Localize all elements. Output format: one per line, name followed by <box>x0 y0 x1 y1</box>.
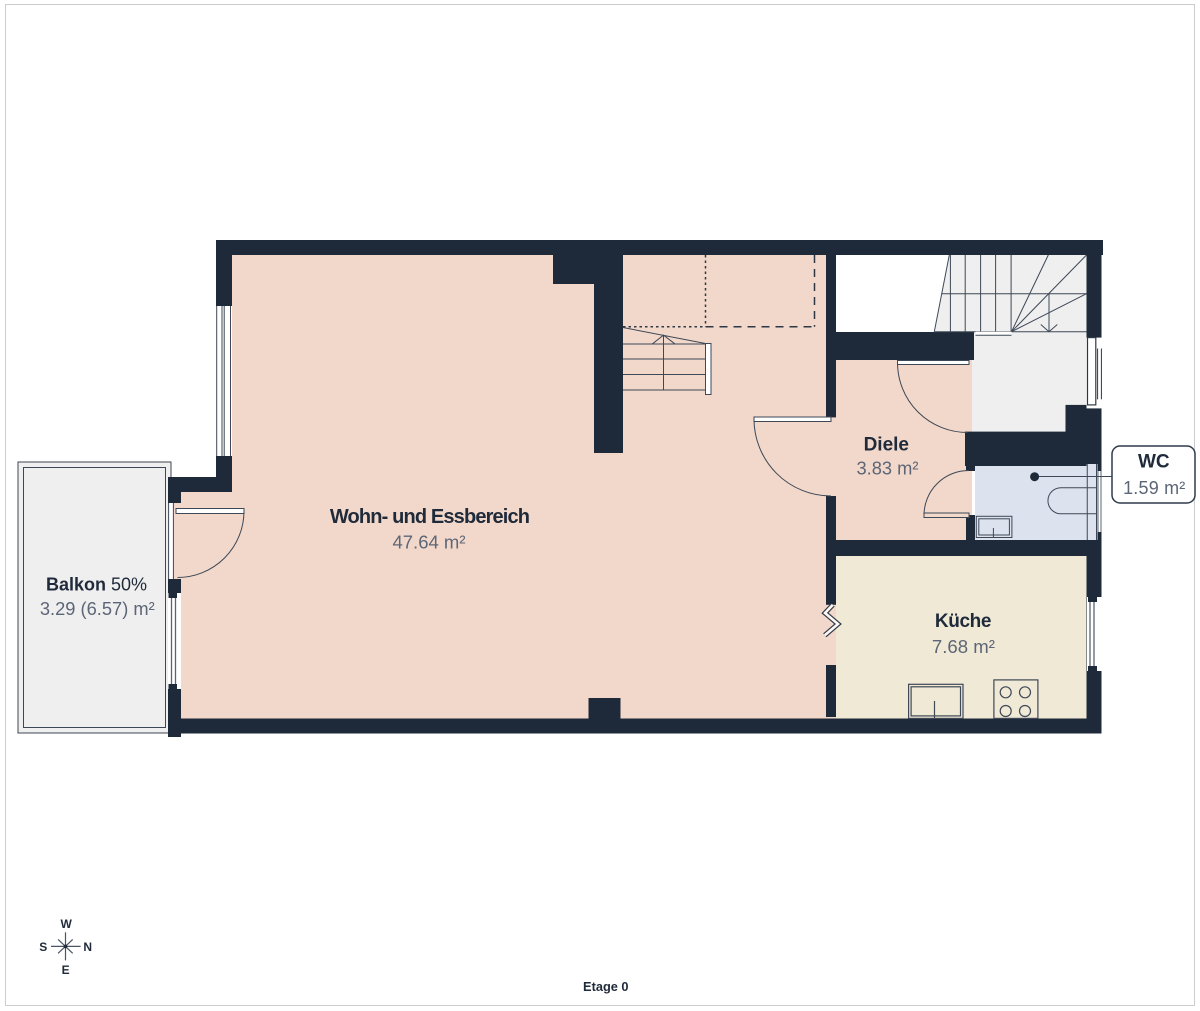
svg-text:Balkon 50%: Balkon 50% <box>46 574 147 594</box>
svg-text:Etage 0: Etage 0 <box>583 979 629 994</box>
svg-text:N: N <box>83 940 92 954</box>
svg-text:1.59 m²: 1.59 m² <box>1123 478 1185 498</box>
svg-text:Küche: Küche <box>935 611 991 632</box>
svg-text:W: W <box>61 917 73 931</box>
svg-text:WC: WC <box>1138 452 1170 473</box>
svg-text:E: E <box>62 963 70 977</box>
svg-text:3.83 m²: 3.83 m² <box>857 458 919 479</box>
svg-text:3.29 (6.57) m²: 3.29 (6.57) m² <box>40 598 155 619</box>
svg-text:Wohn- und Essbereich: Wohn- und Essbereich <box>330 506 529 528</box>
svg-text:47.64 m²: 47.64 m² <box>392 532 465 553</box>
svg-text:S: S <box>39 940 47 954</box>
svg-text:7.68 m²: 7.68 m² <box>932 636 995 657</box>
svg-text:Diele: Diele <box>864 435 909 456</box>
